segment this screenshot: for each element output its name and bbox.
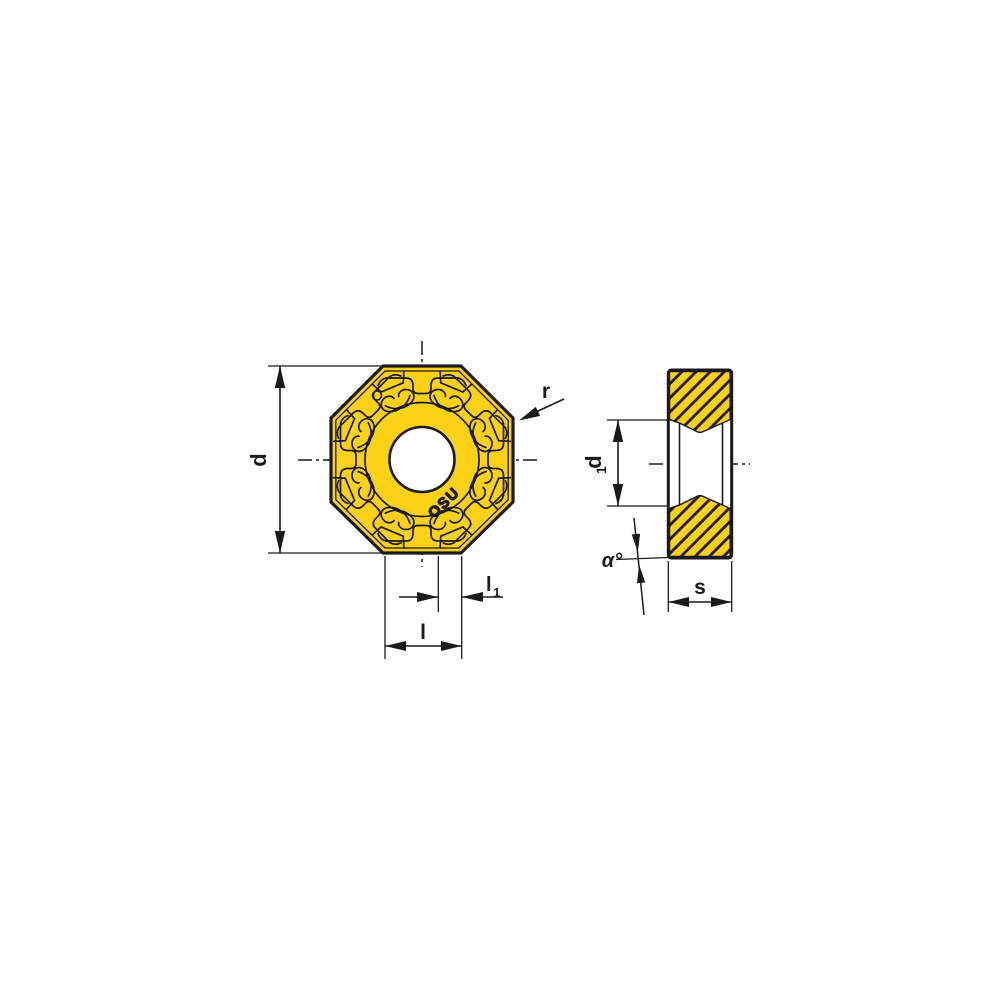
arrowhead-left-icon (668, 597, 689, 607)
arrowhead-leader-icon (519, 407, 540, 421)
section-hatch-top (670, 372, 731, 433)
dimension-l-l1: l1 l (385, 556, 503, 659)
dim-label-alpha: α° (602, 550, 623, 572)
arrowhead-up-icon (613, 420, 623, 442)
arrowhead-down-icon (613, 484, 623, 506)
insert-center-hole (390, 427, 455, 492)
arrowhead-left-icon (385, 641, 406, 651)
dim-label-l1: l1 (486, 574, 500, 600)
side-view: d 1 α° s (581, 370, 750, 615)
dim-label-l: l (420, 621, 426, 644)
technical-drawing-page: OSU d r l1 (0, 0, 1000, 1000)
dim-label-d: d (246, 453, 271, 466)
dim-label-d1-sub: 1 (593, 466, 609, 474)
arrowhead-right-icon (711, 597, 732, 607)
arrowhead-up-icon (275, 366, 285, 388)
arrowhead-right-icon (441, 641, 462, 651)
dim-label-r: r (542, 380, 550, 403)
arrowhead-down-icon (275, 531, 285, 553)
dimension-d1: d 1 (581, 420, 668, 506)
front-view: OSU d r l1 (246, 341, 564, 659)
dimension-s: s (668, 561, 731, 612)
technical-drawing-canvas: OSU d r l1 (0, 0, 1000, 1000)
dim-label-l1-base: l (486, 574, 492, 596)
section-hatch-bottom (670, 496, 731, 557)
angle-leg-line (634, 518, 644, 615)
dim-label-s: s (694, 576, 706, 599)
dimension-r: r (519, 380, 564, 421)
arrowhead-right-icon (417, 592, 438, 602)
angle-leg-line (616, 558, 669, 560)
arrowhead-up-icon (637, 565, 645, 583)
dim-label-d1-group: d 1 (581, 455, 609, 474)
dim-label-l1-sub: 1 (493, 585, 500, 600)
arrowhead-left-icon (462, 592, 483, 602)
dimension-alpha: α° (602, 518, 669, 615)
arrowhead-down-icon (632, 534, 640, 552)
